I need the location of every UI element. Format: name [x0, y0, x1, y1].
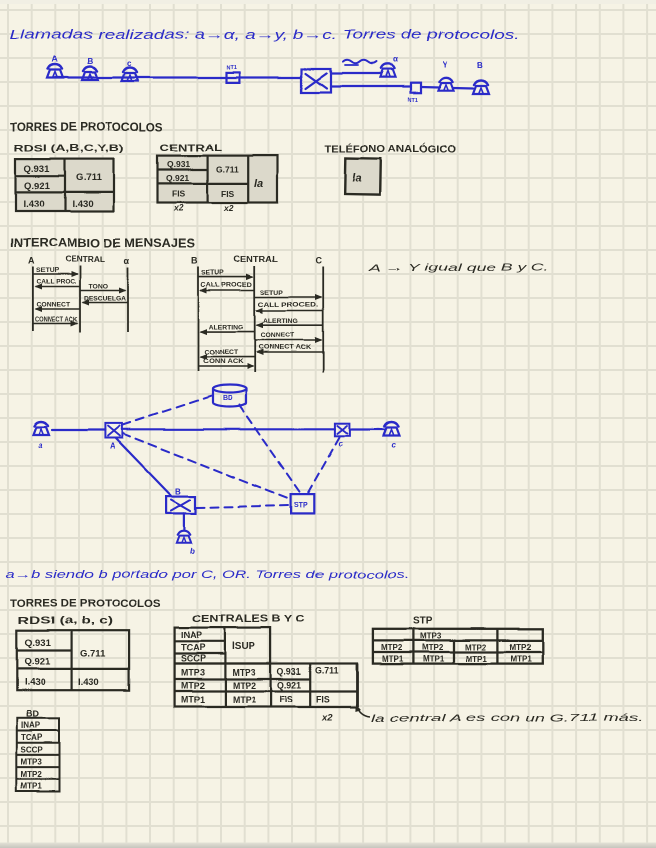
svg-text:CENTRAL: CENTRAL [160, 143, 222, 154]
svg-text:la: la [352, 173, 362, 185]
svg-text:INAP: INAP [181, 630, 202, 640]
svg-text:SCCP: SCCP [181, 654, 206, 664]
svg-text:FIS: FIS [316, 694, 330, 704]
svg-text:MTP1: MTP1 [423, 655, 445, 664]
svg-text:TCAP: TCAP [21, 733, 43, 742]
svg-text:FIS: FIS [221, 189, 235, 199]
svg-text:CENTRAL: CENTRAL [65, 255, 105, 264]
svg-text:x2: x2 [173, 203, 184, 213]
svg-text:la central A es con un G.711 m: la central A es con un G.711 más. [371, 713, 643, 724]
svg-text:Q.921: Q.921 [277, 680, 301, 690]
svg-text:a→b siendo b portado por C, OR: a→b siendo b portado por C, OR. Torres d… [6, 569, 410, 581]
svg-text:CALL PROCED: CALL PROCED [200, 281, 252, 288]
svg-text:CONN ACK: CONN ACK [203, 358, 243, 365]
svg-text:ISUP: ISUP [232, 641, 256, 652]
svg-text:A: A [28, 256, 35, 266]
svg-text:CONNECT ACK: CONNECT ACK [258, 344, 311, 351]
svg-text:INAP: INAP [21, 721, 41, 730]
svg-text:A: A [110, 442, 116, 451]
svg-text:G.711: G.711 [216, 164, 239, 174]
svg-text:CALL PROCED.: CALL PROCED. [258, 302, 318, 309]
svg-text:MTP1: MTP1 [21, 782, 43, 791]
svg-text:α: α [124, 256, 130, 266]
svg-text:Q.921: Q.921 [24, 181, 51, 192]
svg-text:Y: Y [442, 61, 448, 70]
svg-text:TONO: TONO [89, 284, 109, 291]
svg-text:CALL PROC.: CALL PROC. [37, 279, 77, 286]
svg-text:C: C [316, 255, 323, 265]
svg-text:B: B [87, 57, 93, 66]
svg-text:MTP1: MTP1 [510, 655, 532, 664]
svg-text:MTP2: MTP2 [465, 643, 487, 652]
svg-text:CENTRAL: CENTRAL [233, 255, 277, 264]
svg-text:c: c [127, 59, 132, 68]
svg-text:SCCP: SCCP [21, 745, 44, 754]
svg-text:I.430: I.430 [23, 199, 44, 210]
svg-text:la: la [254, 178, 263, 190]
svg-text:I.430: I.430 [78, 677, 99, 688]
svg-text:CENTRALES B Y C: CENTRALES B Y C [192, 614, 305, 625]
svg-text:G.711: G.711 [76, 172, 102, 183]
svg-text:MTP2: MTP2 [422, 643, 444, 652]
svg-text:FIS: FIS [172, 189, 186, 199]
svg-text:Q.931: Q.931 [24, 164, 51, 175]
svg-text:MTP1: MTP1 [466, 655, 488, 664]
svg-text:x2: x2 [223, 203, 234, 213]
svg-text:b: b [189, 547, 194, 556]
svg-text:a: a [38, 441, 43, 450]
svg-text:NT1: NT1 [226, 65, 236, 71]
svg-text:DESCUELGA: DESCUELGA [84, 296, 126, 303]
svg-text:G.711: G.711 [315, 666, 339, 676]
svg-text:A: A [52, 55, 58, 64]
svg-text:SETUP: SETUP [261, 290, 284, 297]
svg-text:ALERTING: ALERTING [263, 318, 298, 325]
svg-text:Q.921: Q.921 [166, 173, 189, 183]
svg-text:CONNECT: CONNECT [204, 349, 238, 356]
svg-text:MTP3: MTP3 [232, 668, 256, 678]
svg-text:I.430: I.430 [72, 199, 93, 210]
svg-text:MTP2: MTP2 [21, 770, 43, 779]
svg-text:SETUP: SETUP [202, 269, 225, 276]
svg-text:MTP3: MTP3 [181, 668, 205, 678]
svg-text:Q.931: Q.931 [167, 159, 190, 169]
svg-text:CONNECT: CONNECT [261, 332, 295, 339]
svg-text:TCAP: TCAP [181, 643, 205, 653]
svg-text:Q.931: Q.931 [277, 667, 301, 677]
svg-text:STP: STP [413, 616, 433, 627]
svg-text:x2: x2 [321, 712, 333, 723]
svg-text:MTP1: MTP1 [382, 655, 404, 664]
svg-text:Q.921: Q.921 [24, 657, 51, 668]
svg-text:INTERCAMBIO DE MENSAJES: INTERCAMBIO DE MENSAJES [10, 238, 195, 250]
svg-text:MTP3: MTP3 [420, 632, 442, 641]
svg-text:B: B [191, 256, 198, 266]
svg-text:G.711: G.711 [80, 649, 106, 660]
svg-text:c: c [339, 440, 344, 449]
svg-text:RDSI (a, b, c): RDSI (a, b, c) [18, 616, 113, 627]
svg-text:MTP2: MTP2 [509, 643, 531, 652]
svg-text:NT1: NT1 [408, 98, 418, 104]
svg-text:I.430: I.430 [24, 677, 45, 688]
svg-text:FIS: FIS [279, 694, 293, 704]
svg-text:MTP2: MTP2 [381, 643, 403, 652]
svg-text:CONNECT: CONNECT [37, 302, 71, 309]
svg-text:MTP3: MTP3 [21, 758, 43, 767]
svg-text:Q.931: Q.931 [25, 638, 52, 649]
svg-text:SETUP: SETUP [36, 268, 59, 275]
svg-text:MTP2: MTP2 [181, 681, 205, 691]
svg-text:MTP1: MTP1 [181, 695, 205, 705]
svg-text:B: B [175, 487, 181, 496]
svg-text:ALERTING: ALERTING [209, 324, 244, 331]
svg-text:TORRES DE PROTOCOLOS: TORRES DE PROTOCOLOS [10, 598, 161, 610]
svg-text:TELÉFONO ANALÓGICO: TELÉFONO ANALÓGICO [325, 142, 456, 155]
svg-text:STP: STP [294, 503, 308, 510]
svg-text:c: c [391, 441, 396, 450]
svg-text:TORRES DE PROTOCOLOS: TORRES DE PROTOCOLOS [10, 122, 163, 134]
svg-text:RDSI (A,B,C,Y,B): RDSI (A,B,C,Y,B) [14, 143, 124, 153]
svg-text:CONNECT ACK: CONNECT ACK [35, 317, 78, 324]
svg-text:α: α [393, 55, 398, 64]
svg-text:MTP1: MTP1 [232, 695, 256, 705]
svg-text:Llamadas realizadas: a→α, a→y,: Llamadas realizadas: a→α, a→y, b→c. Torr… [10, 28, 520, 42]
svg-text:B: B [477, 62, 483, 71]
svg-text:A → Y igual que B y C.: A → Y igual que B y C. [367, 262, 549, 274]
svg-text:BD: BD [222, 396, 232, 403]
svg-text:MTP2: MTP2 [232, 681, 256, 691]
